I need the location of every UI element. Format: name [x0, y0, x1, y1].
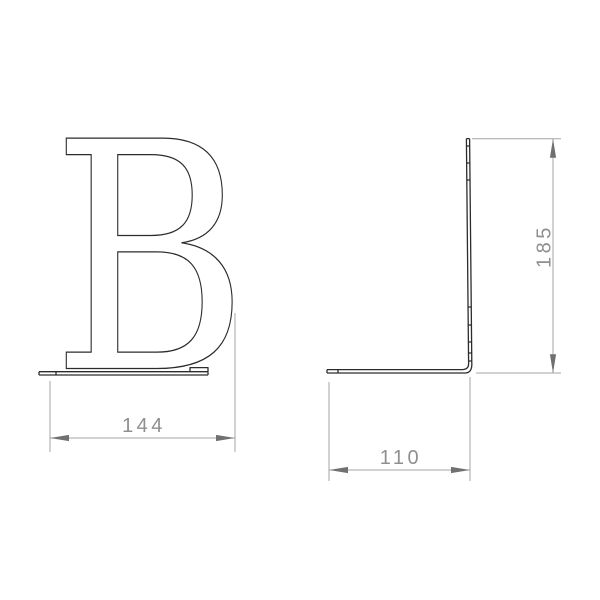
- front-width-label: 144: [122, 415, 166, 437]
- dimension-side-height: 185: [472, 139, 561, 373]
- dimension-side-depth: 110: [329, 377, 470, 481]
- arrow-down-icon: [550, 354, 556, 373]
- side-profile: [327, 139, 472, 373]
- side-view: 185 110: [327, 139, 561, 481]
- arrow-right-icon: [451, 467, 470, 473]
- arrow-up-icon: [550, 139, 556, 158]
- technical-drawing-canvas: B 144 185: [0, 0, 600, 600]
- side-profile-outer: [327, 139, 472, 373]
- side-profile-inner: [327, 139, 469, 370]
- letter-b-outline: B: [52, 76, 249, 444]
- arrow-left-icon: [329, 467, 348, 473]
- side-height-label: 185: [534, 224, 556, 268]
- front-view: B 144: [39, 76, 249, 453]
- side-depth-label: 110: [380, 447, 422, 469]
